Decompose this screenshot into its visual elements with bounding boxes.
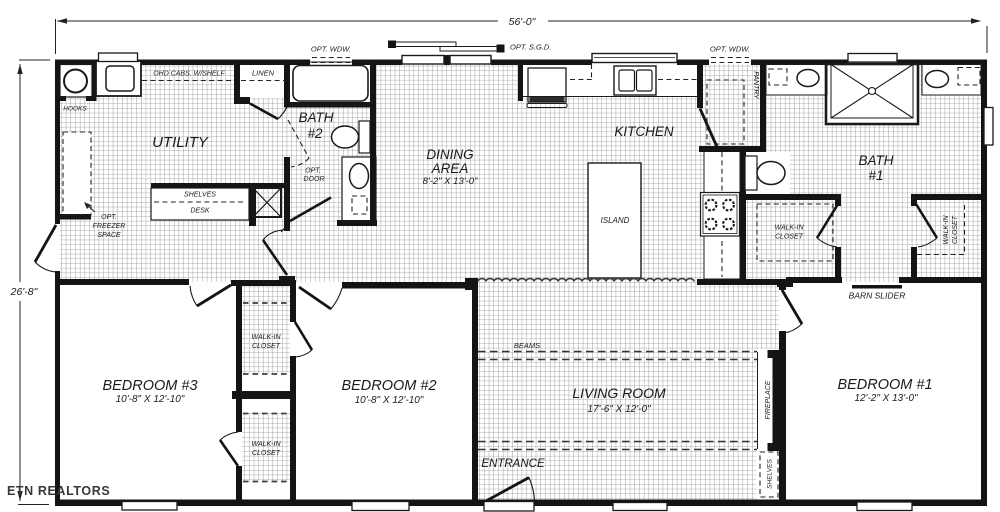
- svg-text:PANTRY: PANTRY: [752, 71, 759, 100]
- svg-text:CLOSET: CLOSET: [252, 450, 281, 457]
- svg-text:DESK: DESK: [190, 208, 209, 215]
- svg-text:WALK-IN: WALK-IN: [251, 441, 281, 448]
- svg-text:#1: #1: [868, 168, 883, 183]
- svg-text:HOOKS: HOOKS: [63, 106, 87, 113]
- svg-text:CLOSET: CLOSET: [775, 234, 804, 241]
- svg-text:LINEN: LINEN: [252, 69, 275, 78]
- svg-text:UTILITY: UTILITY: [152, 134, 209, 151]
- svg-text:OPT. WDW.: OPT. WDW.: [710, 45, 750, 54]
- svg-text:12'-2" X 13'-0": 12'-2" X 13'-0": [854, 393, 918, 404]
- svg-text:BATH: BATH: [858, 153, 893, 168]
- svg-text:DOOR: DOOR: [304, 176, 325, 183]
- svg-text:SHELVES: SHELVES: [184, 192, 216, 199]
- svg-text:ETN REALTORS: ETN REALTORS: [7, 484, 110, 498]
- svg-text:ENTRANCE: ENTRANCE: [481, 458, 545, 470]
- svg-text:OHD CABS. W/SHELF: OHD CABS. W/SHELF: [153, 71, 225, 78]
- svg-text:8'-2" X 13'-0": 8'-2" X 13'-0": [423, 176, 478, 187]
- svg-text:WALK-IN: WALK-IN: [774, 225, 804, 232]
- svg-text:OPT. WDW.: OPT. WDW.: [311, 45, 351, 54]
- svg-text:OPT.: OPT.: [101, 214, 117, 221]
- svg-text:17'-6" X 12'-0": 17'-6" X 12'-0": [587, 404, 651, 415]
- svg-text:OPT. S.G.D.: OPT. S.G.D.: [510, 43, 551, 52]
- svg-text:FREEZER: FREEZER: [93, 223, 126, 230]
- svg-text:DINING: DINING: [426, 147, 473, 162]
- svg-text:56'-0": 56'-0": [509, 16, 537, 28]
- svg-text:AREA: AREA: [431, 161, 469, 176]
- svg-text:BARN SLIDER: BARN SLIDER: [849, 291, 906, 301]
- svg-text:WALK-IN: WALK-IN: [251, 334, 281, 341]
- svg-text:BEDROOM #3: BEDROOM #3: [102, 378, 197, 394]
- svg-text:10'-8" X 12'-10": 10'-8" X 12'-10": [355, 395, 424, 406]
- svg-text:ISLAND: ISLAND: [601, 216, 630, 225]
- svg-text:26'-8": 26'-8": [10, 286, 39, 298]
- svg-text:LIVING ROOM: LIVING ROOM: [572, 385, 666, 401]
- svg-text:CLOSET: CLOSET: [952, 215, 959, 244]
- svg-text:SPACE: SPACE: [97, 232, 121, 239]
- svg-text:WALK-IN: WALK-IN: [943, 215, 950, 245]
- svg-text:BATH: BATH: [298, 110, 333, 125]
- svg-text:SHELVES: SHELVES: [767, 459, 774, 489]
- svg-text:KITCHEN: KITCHEN: [614, 124, 674, 139]
- svg-text:#2: #2: [307, 126, 323, 141]
- svg-text:CLOSET: CLOSET: [252, 343, 281, 350]
- svg-text:OPT.: OPT.: [305, 168, 321, 175]
- svg-text:FIREPLACE: FIREPLACE: [765, 380, 772, 419]
- svg-text:10'-8" X 12'-10": 10'-8" X 12'-10": [116, 394, 185, 405]
- svg-text:BEAMS: BEAMS: [514, 341, 540, 350]
- svg-text:BEDROOM #1: BEDROOM #1: [837, 377, 932, 393]
- svg-text:BEDROOM #2: BEDROOM #2: [341, 378, 436, 394]
